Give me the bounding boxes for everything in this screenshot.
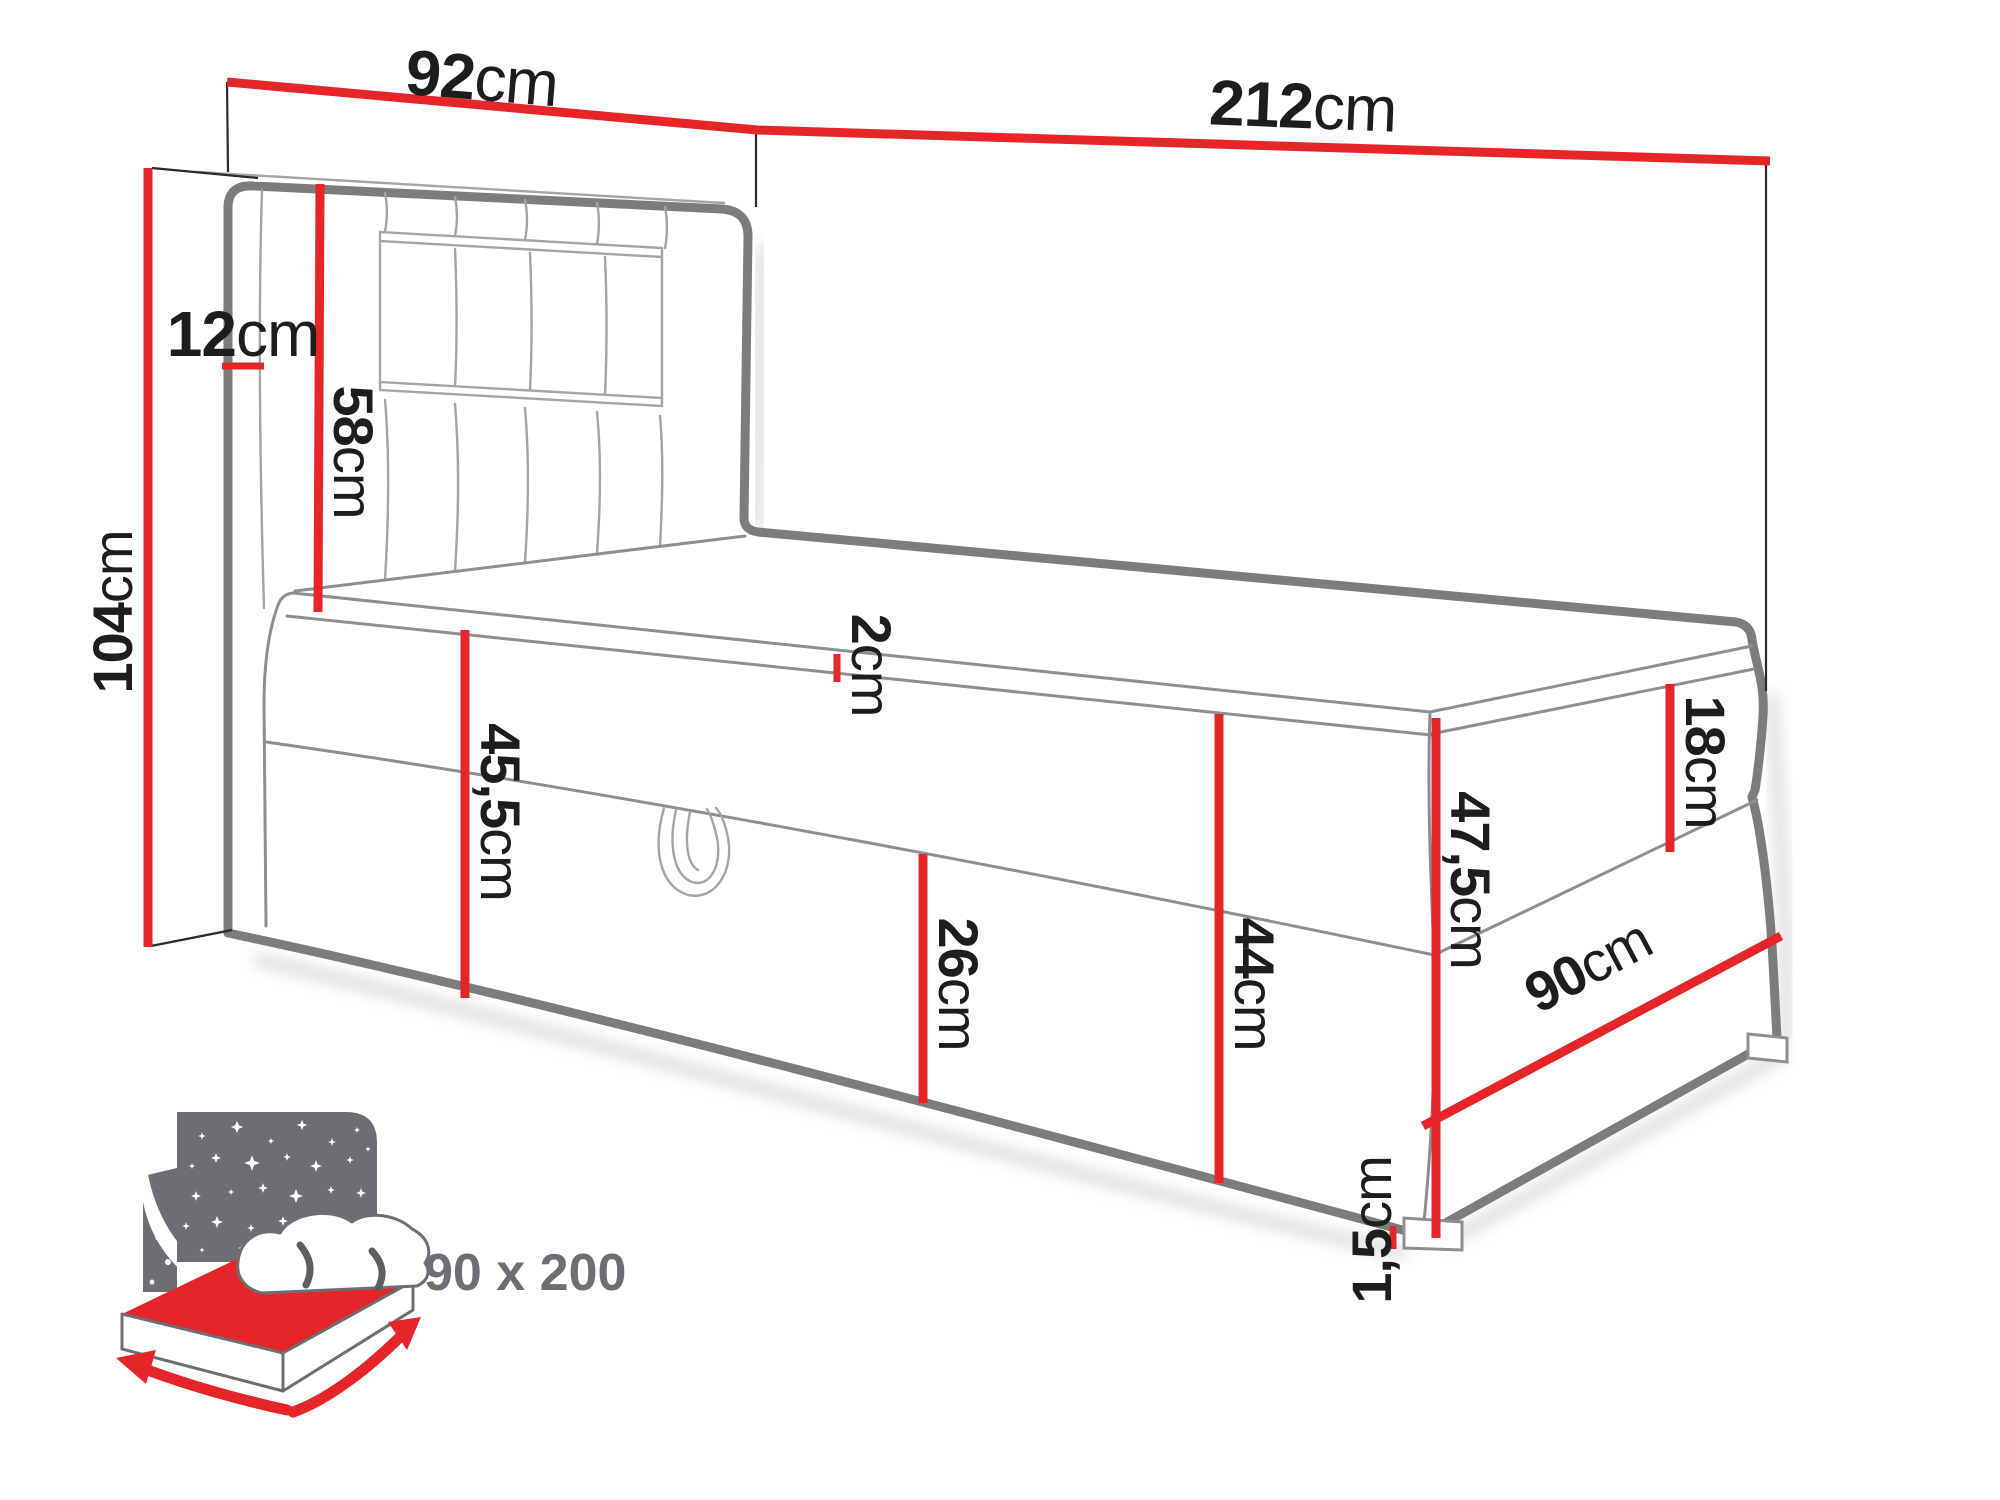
label-headboard-panel: 58cm bbox=[322, 386, 385, 519]
shadow-headboard-right bbox=[757, 250, 762, 525]
dim-line-headboard-panel bbox=[318, 184, 320, 612]
label-headboard-depth: 12cm bbox=[167, 298, 320, 370]
bed-dimension-diagram: 92cm 212cm 12cm 104cm 58cm 2cm 45,5cm 26… bbox=[0, 0, 2000, 1500]
ext-104-bottom bbox=[151, 930, 232, 946]
icon-size-label: 90 x 200 bbox=[424, 1244, 626, 1302]
foot-far bbox=[1748, 1034, 1787, 1062]
label-feet-height: 1,5cm bbox=[1340, 1156, 1403, 1304]
label-headboard-height: 104cm bbox=[81, 530, 144, 693]
bed-drawing bbox=[197, 172, 1787, 1250]
diagram-canvas: 92cm 212cm 12cm 104cm 58cm 2cm 45,5cm 26… bbox=[0, 0, 2000, 1500]
ext-104-top bbox=[152, 168, 258, 178]
icon-arrow-width-head bbox=[116, 1350, 156, 1384]
label-boxes-height: 44cm bbox=[1223, 918, 1286, 1051]
label-storage-box-height: 26cm bbox=[927, 918, 990, 1051]
bed-silhouette bbox=[228, 186, 1777, 1232]
label-mattress-height: 18cm bbox=[1674, 696, 1737, 829]
label-topper-height: 2cm bbox=[840, 614, 903, 717]
label-side-total-height: 47,5cm bbox=[1439, 791, 1502, 969]
size-icon: 90 x 200 bbox=[0, 1112, 626, 1412]
label-headboard-width: 92cm bbox=[403, 36, 561, 120]
label-base-height: 45,5cm bbox=[469, 723, 532, 901]
label-total-length: 212cm bbox=[1208, 66, 1398, 145]
ext-headboard-left-top bbox=[227, 82, 228, 172]
